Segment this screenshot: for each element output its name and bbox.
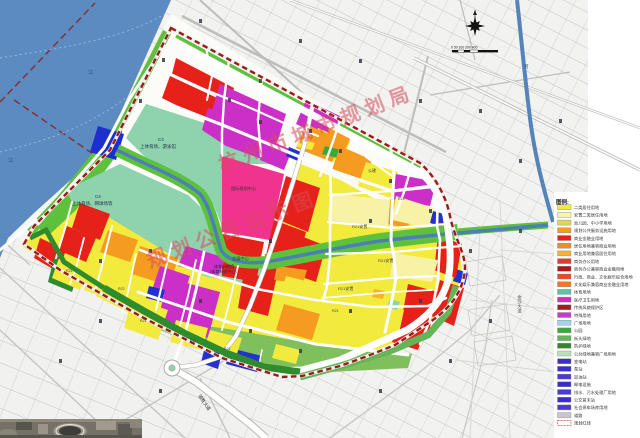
svg-text:上体育场、游泳馆: 上体育场、游泳馆 <box>140 143 176 150</box>
svg-text:安置二类居住用地: 安置二类居住用地 <box>574 212 608 219</box>
svg-text:商务办公兼容商业金融用地: 商务办公兼容商业金融用地 <box>574 266 625 273</box>
svg-text:文化娱乐兼容商业金融业用地: 文化娱乐兼容商业金融业用地 <box>574 281 629 288</box>
svg-text:R21安置: R21安置 <box>378 257 393 263</box>
svg-text:加油站: 加油站 <box>574 373 587 380</box>
svg-text:国际规划中心: 国际规划中心 <box>231 185 257 192</box>
svg-text:商务办公用地: 商务办公用地 <box>574 258 600 265</box>
svg-text:R21安置: R21安置 <box>338 285 353 291</box>
svg-text:江: 江 <box>88 69 93 76</box>
svg-text:(体育科研中心): (体育科研中心) <box>210 268 237 274</box>
svg-text:C4: C4 <box>158 137 164 142</box>
svg-text:排水、污水处理厂用地: 排水、污水处理厂用地 <box>574 389 617 396</box>
svg-text:公交首末站: 公交首末站 <box>574 397 595 404</box>
svg-text:上体育场、网球场等: 上体育场、网球场等 <box>72 200 113 207</box>
svg-text:二类居住用地: 二类居住用地 <box>574 204 600 211</box>
svg-text:社会停车场库用地: 社会停车场库用地 <box>574 404 608 411</box>
svg-text:河: 河 <box>524 63 529 69</box>
svg-text:R21: R21 <box>140 319 147 323</box>
svg-text:幼儿园、中小学用地: 幼儿园、中小学用地 <box>574 219 613 226</box>
svg-text:会展中心: 会展中心 <box>232 255 250 262</box>
svg-text:R21: R21 <box>332 309 339 313</box>
svg-text:变电站: 变电站 <box>574 358 587 365</box>
svg-text:邮电设施: 邮电设施 <box>574 381 592 388</box>
svg-text:体育用地: 体育用地 <box>574 289 592 296</box>
svg-text:防护绿地: 防护绿地 <box>574 343 592 350</box>
svg-text:C4: C4 <box>95 194 101 199</box>
svg-text:泵站: 泵站 <box>574 366 582 373</box>
svg-text:特殊用地: 特殊用地 <box>574 312 592 319</box>
svg-text:R21: R21 <box>398 197 405 201</box>
svg-text:广场用地: 广场用地 <box>574 320 592 327</box>
svg-text:公共绿地兼容广场用地: 公共绿地兼容广场用地 <box>574 350 617 357</box>
svg-text:街头绿地: 街头绿地 <box>574 335 592 342</box>
svg-text:R21: R21 <box>224 347 231 351</box>
svg-text:R22: R22 <box>118 287 125 291</box>
svg-text:R21: R21 <box>66 269 73 273</box>
svg-text:行政、商业、文化娱乐综合用地: 行政、商业、文化娱乐综合用地 <box>574 273 633 280</box>
svg-text:传统风貌保护区: 传统风貌保护区 <box>574 304 603 311</box>
svg-text:R21安置: R21安置 <box>352 223 367 229</box>
svg-text:商业用地兼容居住用地: 商业用地兼容居住用地 <box>574 250 617 257</box>
svg-text:居住用地兼容商业用地: 居住用地兼容商业用地 <box>574 243 617 250</box>
svg-text:规划红线: 规划红线 <box>574 420 592 427</box>
svg-text:江: 江 <box>8 157 13 164</box>
svg-text:0 50 100 200 400: 0 50 100 200 400 <box>451 46 478 50</box>
svg-text:R21: R21 <box>190 339 197 343</box>
svg-text:金沙大道: 金沙大道 <box>517 294 523 315</box>
svg-text:医疗卫生用地: 医疗卫生用地 <box>574 296 600 303</box>
svg-text:商业金融业用地: 商业金融业用地 <box>574 235 604 242</box>
svg-text:公建: 公建 <box>368 167 376 173</box>
svg-text:规划公共服务设施用地: 规划公共服务设施用地 <box>574 227 617 234</box>
svg-text:道路: 道路 <box>574 412 583 419</box>
